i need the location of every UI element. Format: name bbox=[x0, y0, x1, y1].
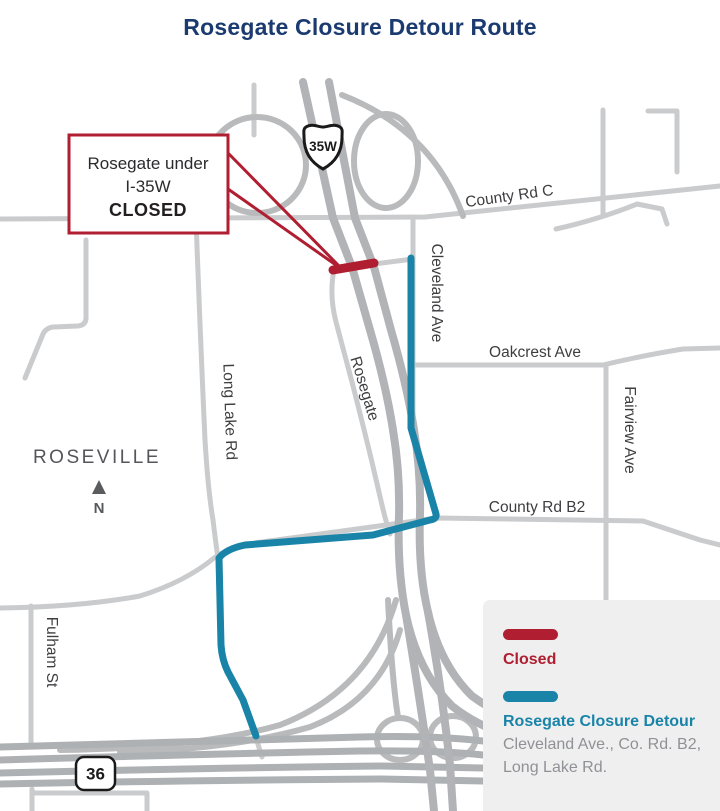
callout-text-line3: CLOSED bbox=[109, 200, 187, 220]
road-left-jog bbox=[25, 240, 86, 378]
hwy36-strand-1 bbox=[0, 737, 483, 748]
label-cleveland-ave: Cleveland Ave bbox=[428, 244, 445, 343]
detour-route-line bbox=[219, 258, 436, 736]
closure-callout: Rosegate under I-35W CLOSED bbox=[69, 135, 343, 270]
road-ne-hook bbox=[648, 111, 677, 172]
label-fulham-st: Fulham St bbox=[43, 617, 60, 688]
callout-text-line2: I-35W bbox=[125, 177, 170, 196]
road-bottom-stub bbox=[33, 793, 147, 811]
legend-detour-swatch bbox=[503, 691, 558, 702]
label-roseville: ROSEVILLE bbox=[33, 447, 161, 468]
legend-detour-label: Rosegate Closure Detour bbox=[503, 713, 695, 730]
label-long-lake-rd: Long Lake Rd bbox=[219, 363, 239, 460]
detour-map: Rosegate under I-35W CLOSED 35W 36 Count… bbox=[0, 0, 720, 811]
hwy36-strand-4 bbox=[0, 779, 483, 784]
highway-36-shield-icon: 36 bbox=[76, 757, 115, 790]
road-ne-branch bbox=[556, 204, 667, 229]
road-rosegate-east-connector bbox=[374, 259, 413, 264]
road-county-rd-b2 bbox=[0, 518, 720, 608]
hwy36-strand-3 bbox=[0, 766, 483, 773]
callout-text-line1: Rosegate under bbox=[88, 154, 209, 173]
highway-36-shield-label: 36 bbox=[86, 765, 105, 784]
cloverleaf-ne-loop bbox=[354, 114, 418, 208]
label-oakcrest-ave: Oakcrest Ave bbox=[489, 344, 581, 361]
legend-closed-swatch bbox=[503, 629, 558, 640]
legend: Closed Rosegate Closure Detour Cleveland… bbox=[483, 600, 720, 811]
north-arrow-label: N bbox=[94, 500, 105, 517]
label-county-rd-b2: County Rd B2 bbox=[489, 499, 586, 516]
legend-detour-desc-line1: Cleveland Ave., Co. Rd. B2, bbox=[503, 736, 701, 753]
legend-closed-label: Closed bbox=[503, 651, 556, 668]
label-fairview-ave: Fairview Ave bbox=[621, 386, 638, 474]
detour-map-page: Rosegate Closure Detour Route bbox=[0, 0, 720, 811]
north-arrow-icon: N bbox=[92, 480, 106, 517]
interstate-35w-shield-label: 35W bbox=[309, 139, 337, 154]
interstate-35w-shield-icon: 35W bbox=[304, 125, 342, 169]
legend-detour-desc-line2: Long Lake Rd. bbox=[503, 759, 607, 776]
